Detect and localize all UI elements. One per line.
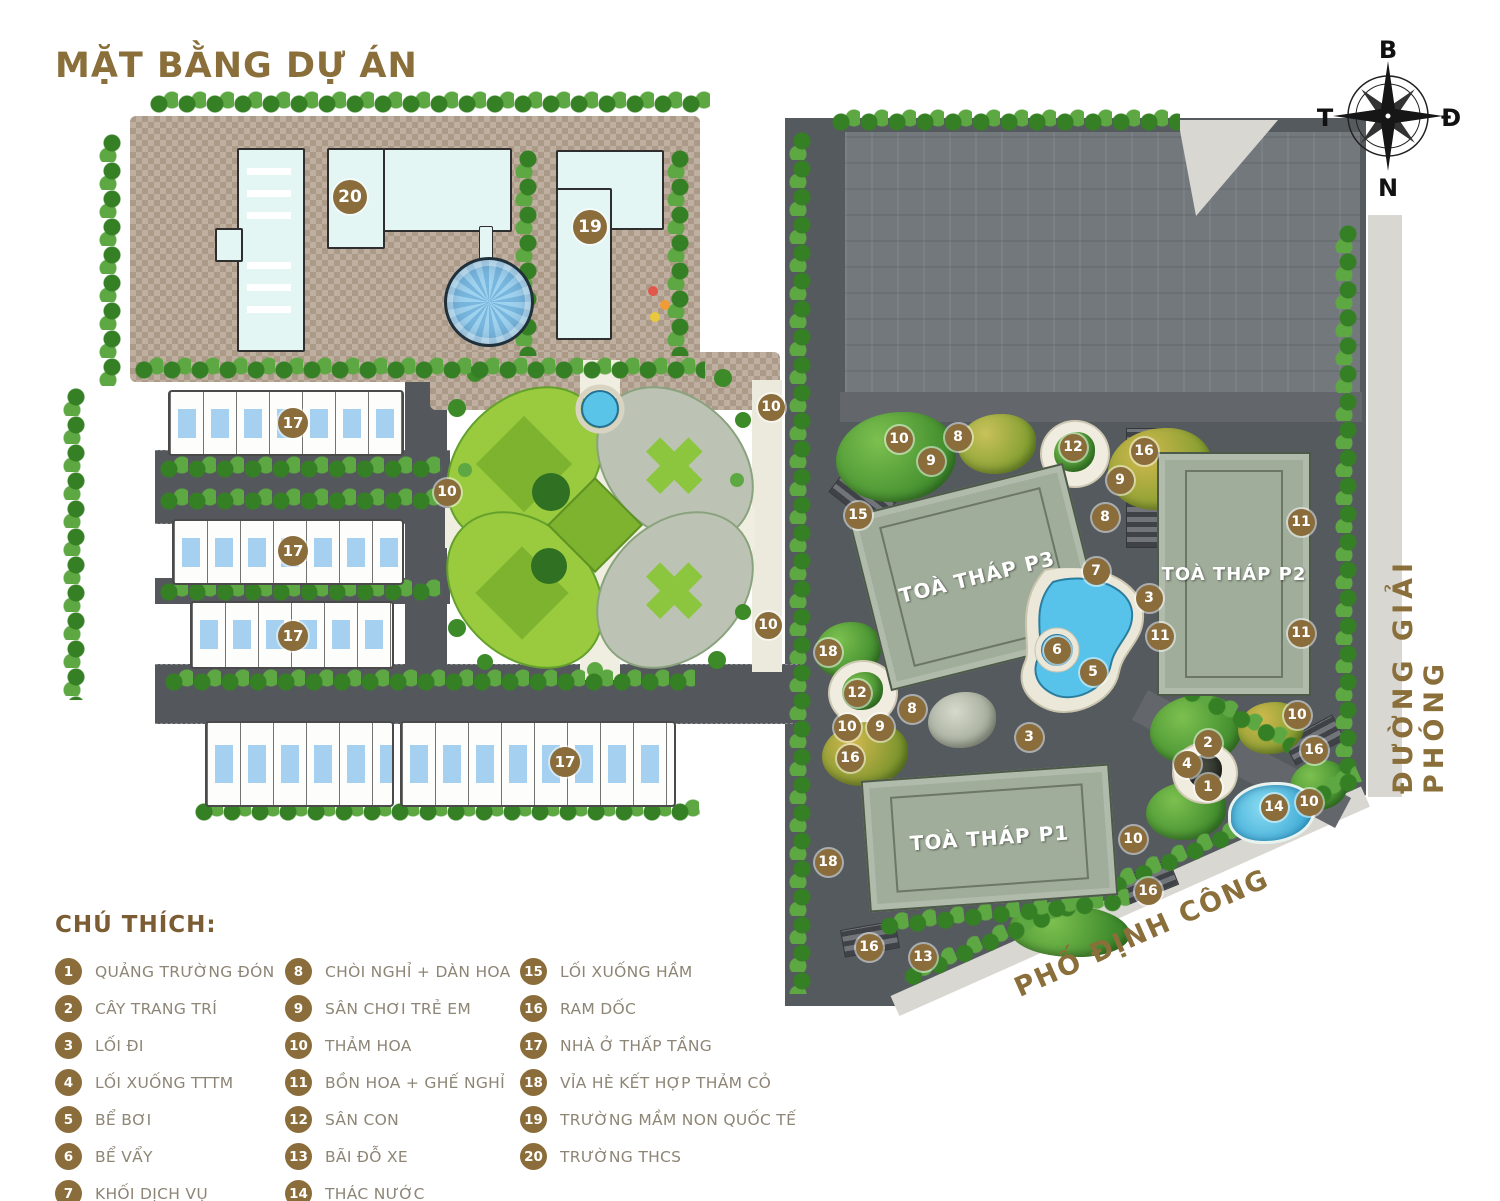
compass-rose-icon: B Đ N T [1318,38,1458,198]
map-marker-16: 16 [856,934,883,961]
tower-p1: TOÀ THÁP P1 [861,763,1119,912]
map-marker-8: 8 [945,424,972,451]
legend-badge-6: 6 [55,1143,82,1170]
legend-item-20: 20TRƯỜNG THCS [520,1143,830,1170]
legend-badge-20: 20 [520,1143,547,1170]
legend-badge-11: 11 [285,1069,312,1096]
legend-badge-4: 4 [55,1069,82,1096]
legend-label: LỐI XUỐNG TTTM [95,1074,233,1092]
legend-item-7: 7KHỐI DỊCH VỤ [55,1180,285,1201]
legend-badge-12: 12 [285,1106,312,1133]
legend-label: TRƯỜNG THCS [560,1148,681,1166]
tree-row [135,356,705,382]
tree-row [832,108,1180,134]
tree-row [160,455,442,481]
legend-badge-19: 19 [520,1106,547,1133]
map-marker-13: 13 [910,944,937,971]
legend-label: BỂ BƠI [95,1111,152,1129]
legend-badge-15: 15 [520,958,547,985]
map-marker-16: 16 [1135,878,1162,905]
map-marker-17: 17 [278,621,308,651]
legend-badge-9: 9 [285,995,312,1022]
townhouse-row [205,721,394,807]
legend-item-4: 4LỐI XUỐNG TTTM [55,1069,285,1096]
map-marker-10: 10 [834,714,861,741]
map-marker-17: 17 [278,408,308,438]
legend-item-6: 6BỂ VẨY [55,1143,285,1170]
compass-star-icon [1328,56,1448,176]
dome-skylight [444,257,534,347]
tree-row [98,134,124,386]
legend-label: KHỐI DỊCH VỤ [95,1185,208,1201]
map-marker-18: 18 [815,849,842,876]
compass-east-label: Đ [1441,104,1461,132]
compass-north-label: B [1379,36,1397,64]
legend-item-8: 8CHÒI NGHỈ + DÀN HOA [285,958,520,985]
map-marker-10: 10 [758,394,785,421]
map-marker-17: 17 [550,747,580,777]
map-marker-11: 11 [1288,620,1315,647]
legend-label: QUẢNG TRƯỜNG ĐÓN [95,963,275,981]
legend-badge-14: 14 [285,1180,312,1201]
map-marker-11: 11 [1288,509,1315,536]
map-marker-17: 17 [278,536,308,566]
legend-item-18: 18VỈA HÈ KẾT HỢP THẢM CỎ [520,1069,830,1096]
legend-label: CHÒI NGHỈ + DÀN HOA [325,963,511,981]
compass-south-label: N [1378,174,1398,202]
legend-label: THẢM HOA [325,1037,412,1055]
tower-p1-label: TOÀ THÁP P1 [909,820,1070,855]
map-marker-19: 19 [573,210,607,244]
legend-badge-2: 2 [55,995,82,1022]
legend-badge-10: 10 [285,1032,312,1059]
legend-badge-13: 13 [285,1143,312,1170]
legend-label: LỐI XUỐNG HẦM [560,963,693,981]
swimming-pool [1015,568,1150,718]
legend-label: THÁC NƯỚC [325,1185,425,1201]
legend-item-16: 16RAM DỐC [520,995,830,1022]
townhouse-row [400,721,676,807]
legend-heading: CHÚ THÍCH: [55,912,830,938]
legend-item-10: 10THẢM HOA [285,1032,520,1059]
map-marker-16: 16 [837,745,864,772]
legend-item-14: 14THÁC NƯỚC [285,1180,520,1201]
tree-row [160,487,442,513]
legend-label: VỈA HÈ KẾT HỢP THẢM CỎ [560,1074,771,1092]
legend-label: RAM DỐC [560,1000,636,1018]
map-marker-7: 7 [1083,558,1110,585]
school-annex [215,228,243,262]
map-marker-9: 9 [918,448,945,475]
tower-p2: TOÀ THÁP P2 [1157,452,1311,696]
legend-badge-8: 8 [285,958,312,985]
map-marker-11: 11 [1147,623,1174,650]
school-roof-bars [247,168,291,220]
playground-toys [648,286,678,326]
legend-item-17: 17NHÀ Ở THẤP TẦNG [520,1032,830,1059]
tree-row [165,668,695,694]
legend-column-1: 1QUẢNG TRƯỜNG ĐÓN2CÂY TRANG TRÍ3LỐI ĐI4L… [55,958,285,1201]
legend-label: CÂY TRANG TRÍ [95,1000,217,1018]
map-marker-4: 4 [1174,751,1201,778]
map-marker-12: 12 [1060,434,1087,461]
parking-area [845,132,1360,398]
legend-label: BÃI ĐỖ XE [325,1148,408,1166]
tree-row [150,90,710,116]
legend-label: NHÀ Ở THẤP TẦNG [560,1037,712,1055]
legend-label: BỒN HOA + GHẾ NGHỈ [325,1074,505,1092]
legend-badge-18: 18 [520,1069,547,1096]
legend-badge-1: 1 [55,958,82,985]
map-marker-16: 16 [1301,737,1328,764]
legend-item-9: 9SÂN CHƠI TRẺ EM [285,995,520,1022]
map-marker-6: 6 [1044,637,1071,664]
map-marker-9: 9 [1107,467,1134,494]
map-marker-3: 3 [1016,724,1043,751]
map-marker-10: 10 [1120,826,1147,853]
map-marker-5: 5 [1080,659,1107,686]
site-plan-canvas: MẶT BẰNG DỰ ÁN B Đ N T [0,0,1500,1201]
compass-west-label: T [1317,104,1333,132]
map-marker-10: 10 [434,479,461,506]
map-marker-9: 9 [867,714,894,741]
legend-item-3: 3LỐI ĐI [55,1032,285,1059]
map-marker-18: 18 [815,639,842,666]
central-garden [445,360,755,680]
legend-label: SÂN CON [325,1111,399,1129]
legend-item-13: 13BÃI ĐỖ XE [285,1143,520,1170]
legend-columns: 1QUẢNG TRƯỜNG ĐÓN2CÂY TRANG TRÍ3LỐI ĐI4L… [55,958,830,1201]
tree-row [1334,225,1360,783]
legend-item-15: 15LỐI XUỐNG HẦM [520,958,830,985]
map-marker-8: 8 [1092,504,1119,531]
map-marker-10: 10 [1284,702,1311,729]
tree-row [62,388,88,700]
tower-p2-label: TOÀ THÁP P2 [1162,564,1307,585]
school-building-20-east [383,148,512,232]
legend-badge-3: 3 [55,1032,82,1059]
map-marker-2: 2 [1195,730,1222,757]
legend-label: TRƯỜNG MẦM NON QUỐC TẾ [560,1111,796,1129]
legend-badge-16: 16 [520,995,547,1022]
map-marker-14: 14 [1261,794,1288,821]
tree-row [788,132,814,994]
map-marker-10: 10 [1296,789,1323,816]
legend-label: BỂ VẨY [95,1148,153,1166]
legend-item-11: 11BỒN HOA + GHẾ NGHỈ [285,1069,520,1096]
legend-column-3: 15LỐI XUỐNG HẦM16RAM DỐC17NHÀ Ở THẤP TẦN… [520,958,830,1201]
legend-badge-17: 17 [520,1032,547,1059]
legend-item-19: 19TRƯỜNG MẦM NON QUỐC TẾ [520,1106,830,1133]
legend-badge-7: 7 [55,1180,82,1201]
legend-item-1: 1QUẢNG TRƯỜNG ĐÓN [55,958,285,985]
map-marker-10: 10 [755,612,782,639]
legend-label: LỐI ĐI [95,1037,144,1055]
map-marker-3: 3 [1136,585,1163,612]
legend-item-2: 2CÂY TRANG TRÍ [55,995,285,1022]
legend-column-2: 8CHÒI NGHỈ + DÀN HOA9SÂN CHƠI TRẺ EM10TH… [285,958,520,1201]
map-marker-12: 12 [844,680,871,707]
legend-item-5: 5BỂ BƠI [55,1106,285,1133]
map-marker-10: 10 [886,426,913,453]
map-marker-15: 15 [845,502,872,529]
legend-badge-5: 5 [55,1106,82,1133]
school-roof-bars [247,262,291,324]
road-label-giai-phong: ĐƯỜNG GIẢI PHÓNG [1388,442,1450,794]
map-marker-1: 1 [1195,774,1222,801]
map-marker-8: 8 [899,696,926,723]
legend-label: SÂN CHƠI TRẺ EM [325,1000,471,1018]
legend: CHÚ THÍCH: 1QUẢNG TRƯỜNG ĐÓN2CÂY TRANG T… [55,912,830,1201]
map-marker-16: 16 [1131,438,1158,465]
map-marker-20: 20 [333,180,367,214]
legend-item-12: 12SÂN CON [285,1106,520,1133]
